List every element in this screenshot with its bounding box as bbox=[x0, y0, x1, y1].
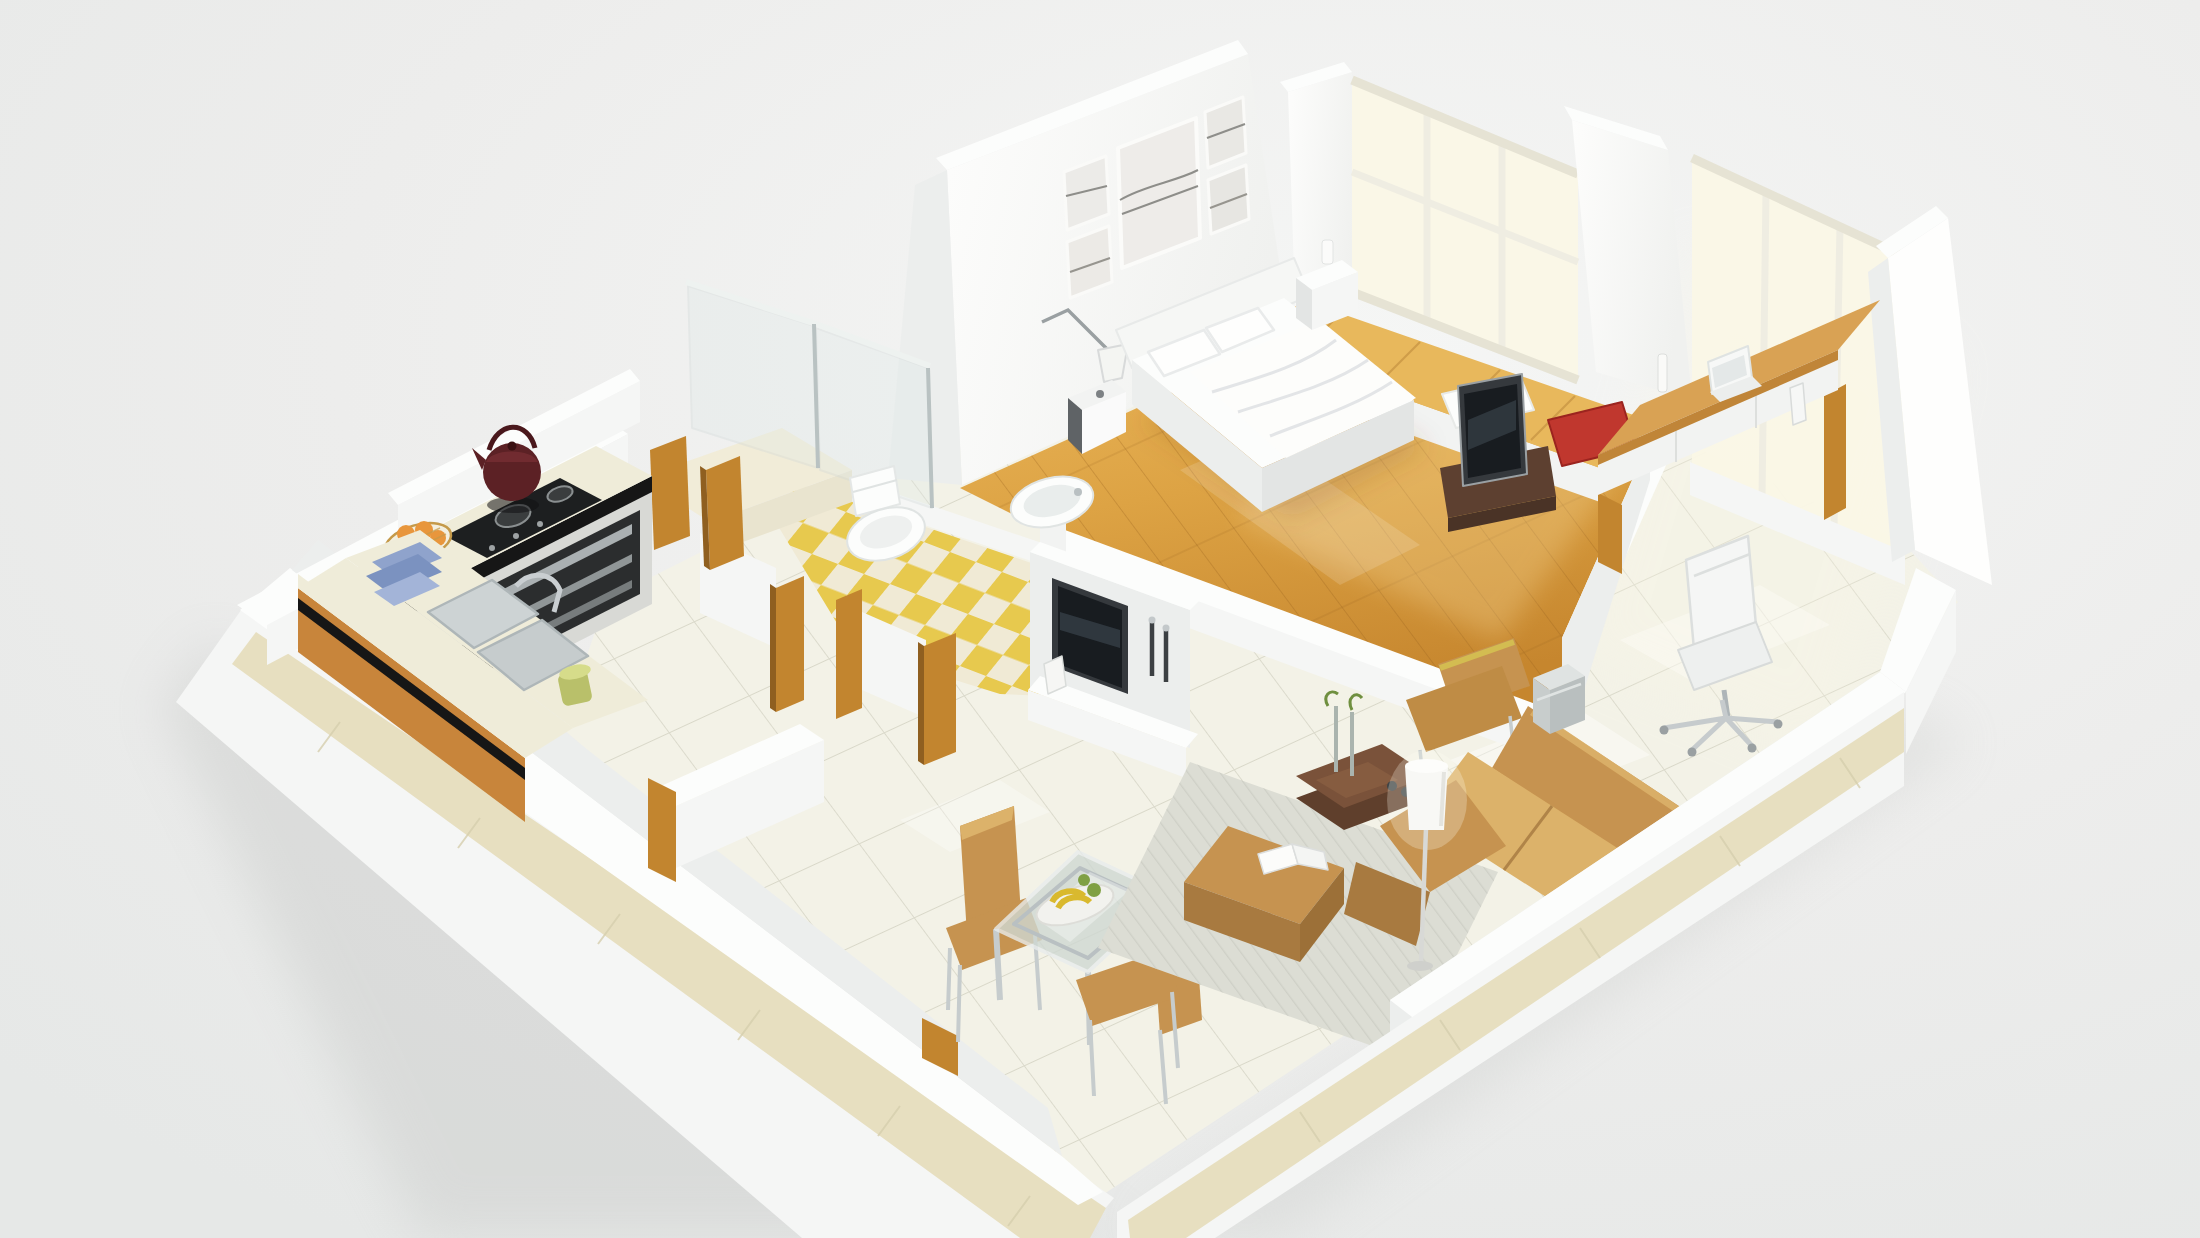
kitchen-door-jamb bbox=[706, 456, 744, 570]
green-fruit bbox=[1087, 883, 1101, 897]
sink-faucet bbox=[1074, 488, 1082, 496]
desk-gadget bbox=[1790, 383, 1806, 425]
partition-wood-end bbox=[648, 778, 676, 882]
desk-candle bbox=[1658, 354, 1667, 392]
kitchen-door-jamb bbox=[650, 436, 690, 550]
door-jamb bbox=[836, 589, 862, 719]
desk-leg-panel bbox=[1824, 384, 1846, 520]
apartment-3d-floorplan bbox=[0, 0, 2200, 1238]
floorplan-canvas bbox=[0, 0, 2200, 1238]
nightstand-bottle bbox=[1322, 240, 1333, 264]
door-jamb bbox=[776, 576, 804, 712]
nightstand-decor bbox=[1096, 390, 1104, 398]
desk-leg-panel bbox=[1598, 493, 1622, 574]
door-jamb bbox=[924, 633, 956, 765]
